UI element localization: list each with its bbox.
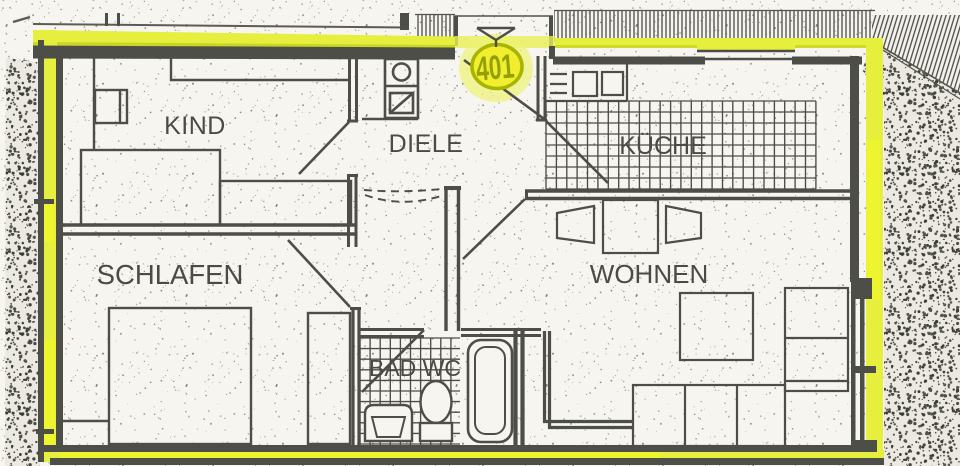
svg-text:401: 401 (475, 47, 516, 88)
svg-text:WOHNEN: WOHNEN (590, 259, 708, 289)
svg-text:DIELE: DIELE (389, 130, 464, 158)
svg-text:KIND: KIND (164, 112, 226, 140)
svg-text:BAD WC: BAD WC (369, 355, 461, 381)
svg-text:SCHLAFEN: SCHLAFEN (97, 259, 244, 290)
svg-text:KÜCHE: KÜCHE (619, 132, 707, 160)
